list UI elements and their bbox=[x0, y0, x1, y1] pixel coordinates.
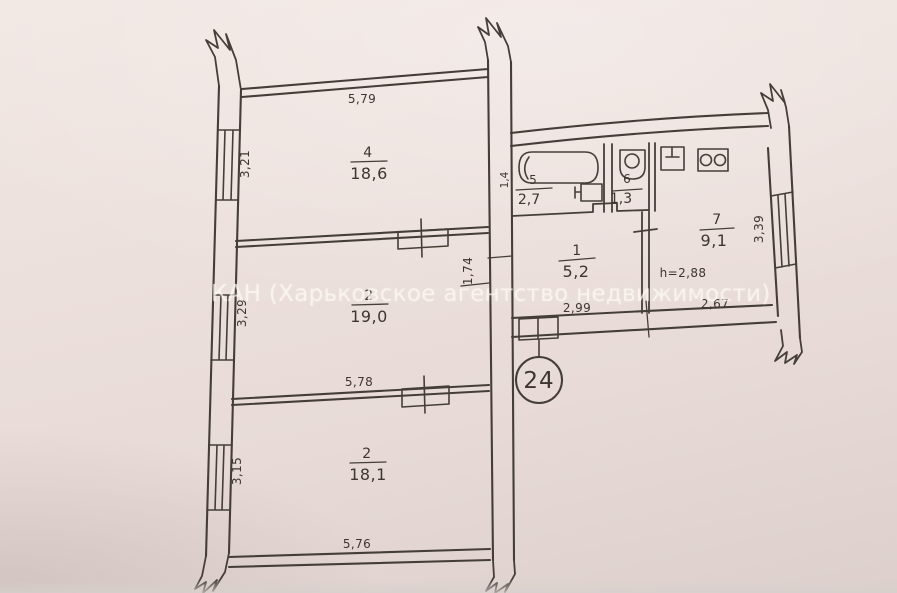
room-number: 1 bbox=[572, 243, 581, 259]
wall-break-icon-top-right bbox=[761, 84, 789, 128]
stove-icon bbox=[698, 149, 728, 171]
dimension-bath-width: 1,4 bbox=[499, 171, 511, 188]
floorplan-photo: 24 4 18,6 2 19,0 2 18,1 1 5,2 5 bbox=[0, 0, 897, 593]
room-label-living-mid: 2 19,0 bbox=[350, 288, 388, 326]
room-area: 9,1 bbox=[701, 231, 728, 250]
window-icon-mid bbox=[211, 295, 236, 360]
room-number: 5 bbox=[529, 173, 537, 187]
hallway-kitchen-partition bbox=[634, 212, 657, 313]
floorplan-drawing: 24 4 18,6 2 19,0 2 18,1 1 5,2 5 bbox=[0, 0, 897, 593]
room-area: 18,6 bbox=[350, 164, 388, 183]
room-area: 1,3 bbox=[610, 191, 632, 207]
dimension-kitchen-width: 2,67 bbox=[701, 297, 729, 311]
right-exterior-wall bbox=[768, 126, 800, 338]
dimension-window-bottom: 3,15 bbox=[230, 457, 244, 485]
kitchen-sink-icon bbox=[661, 147, 684, 170]
right-block-top-wall bbox=[511, 113, 768, 146]
ceiling-height-label: h=2,88 bbox=[660, 266, 707, 280]
label-divider bbox=[352, 304, 388, 305]
apartment-number-badge: 24 bbox=[516, 357, 562, 403]
washbasin-icon bbox=[575, 184, 602, 201]
room-number: 7 bbox=[712, 212, 721, 228]
room-area: 5,2 bbox=[563, 262, 590, 281]
room-area: 2,7 bbox=[518, 192, 540, 208]
room-area: 19,0 bbox=[350, 307, 388, 326]
label-divider bbox=[351, 161, 387, 162]
dimension-window-mid: 3,29 bbox=[235, 299, 249, 327]
room-number: 2 bbox=[362, 446, 371, 462]
dimension-hall-depth: 1,74 bbox=[461, 257, 475, 285]
room-number: 2 bbox=[364, 288, 373, 304]
wall-break-icon-bottom-left bbox=[195, 553, 229, 593]
wall-break-icon-top-left bbox=[206, 30, 241, 90]
room-label-living-bottom: 2 18,1 bbox=[349, 446, 387, 484]
room-label-living-top: 4 18,6 bbox=[350, 145, 388, 183]
label-divider bbox=[516, 188, 552, 190]
window-icon-bottom bbox=[207, 445, 232, 510]
central-wall bbox=[488, 60, 514, 560]
dimension-top-width: 5,79 bbox=[348, 92, 376, 106]
wall-break-icon-bottom-right bbox=[775, 330, 802, 364]
wall-break-icon-top-central bbox=[478, 18, 511, 62]
dimension-window-top: 3,21 bbox=[238, 150, 252, 178]
dimension-right-window: 3,39 bbox=[752, 215, 766, 243]
wc-kitchen-partition bbox=[649, 143, 655, 211]
dimension-bottom-width: 5,76 bbox=[343, 537, 371, 551]
room-label-hallway: 1 5,2 bbox=[559, 243, 595, 281]
room-area: 18,1 bbox=[349, 465, 387, 484]
apartment-number: 24 bbox=[523, 368, 554, 394]
window-icon-top bbox=[216, 130, 240, 200]
room-number: 4 bbox=[363, 145, 372, 161]
dimension-hall-width: 2,99 bbox=[563, 301, 591, 315]
room-label-wc: 6 1,3 bbox=[610, 172, 642, 207]
label-divider bbox=[700, 228, 734, 230]
room-number: 6 bbox=[623, 172, 631, 186]
label-divider bbox=[350, 462, 386, 463]
room-label-kitchen: 7 9,1 bbox=[700, 212, 734, 250]
dimension-mid-width: 5,78 bbox=[345, 375, 373, 389]
wall-break-icon-bottom-central bbox=[486, 560, 515, 593]
right-block-bottom-wall bbox=[512, 301, 776, 337]
